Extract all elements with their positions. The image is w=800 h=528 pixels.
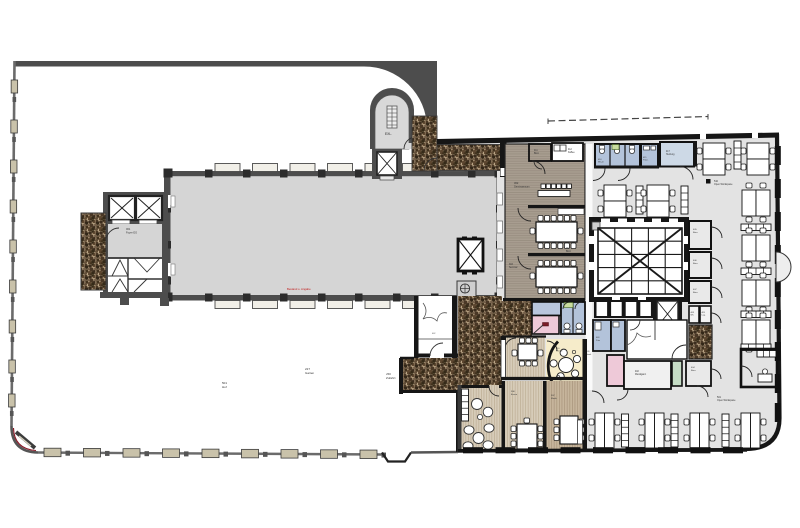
svg-text:001: 001 [126,227,131,231]
svg-text:Büro: Büro [693,231,698,234]
svg-text:Bestand o. Angabe: Bestand o. Angabe [287,287,311,291]
svg-text:Lag.: Lag. [702,315,706,317]
svg-text:Heizung: Heizung [666,154,675,156]
svg-text:Büro: Büro [693,291,698,294]
svg-text:WC: WC [691,315,695,317]
svg-text:Essen: Essen [511,394,518,396]
svg-text:Seminar: Seminar [509,266,518,269]
svg-text:Lounge: Lounge [465,382,473,384]
svg-text:Seminarraum: Seminarraum [514,185,530,189]
svg-text:Putz: Putz [596,339,600,342]
svg-text:Büro: Büro [693,262,698,265]
svg-text:Büro: Büro [566,250,572,253]
svg-text:Zufahrt: Zufahrt [386,376,396,380]
svg-text:302: 302 [514,181,519,185]
svg-text:Open Workspace: Open Workspace [717,399,736,402]
svg-text:Hof: Hof [222,385,227,389]
svg-text:Büro: Büro [691,369,696,372]
svg-text:EXL.: EXL. [385,132,392,136]
svg-text:Open Workspace: Open Workspace [714,183,733,186]
svg-text:Putzr.: Putzr. [643,159,649,162]
svg-text:WC-D: WC-D [598,162,604,164]
svg-text:Garten: Garten [305,371,315,375]
svg-text:Foyer EG: Foyer EG [126,231,137,235]
svg-text:Büro: Büro [534,152,540,155]
svg-text:Musik: Musik [551,398,558,400]
svg-text:Musikgard.: Musikgard. [635,373,647,376]
svg-text:Kaffee: Kaffee [568,152,575,154]
